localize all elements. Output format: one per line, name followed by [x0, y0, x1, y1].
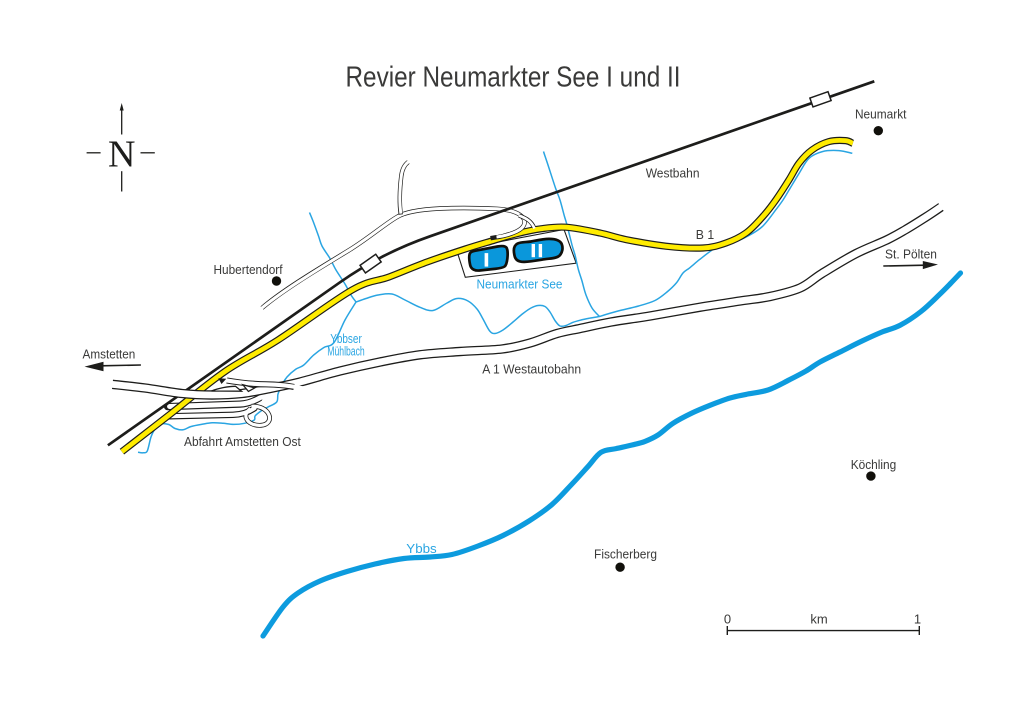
svg-text:Abfahrt Amstetten Ost: Abfahrt Amstetten Ost: [184, 434, 301, 449]
svg-text:1: 1: [914, 612, 921, 627]
svg-text:Neumarkter See: Neumarkter See: [477, 276, 563, 291]
svg-text:Mühlbach: Mühlbach: [327, 344, 365, 359]
svg-text:Fischerberg: Fischerberg: [594, 547, 657, 562]
svg-text:A 1 Westautobahn: A 1 Westautobahn: [482, 362, 581, 377]
svg-text:St. Pölten: St. Pölten: [885, 246, 937, 261]
svg-text:N: N: [108, 134, 135, 176]
svg-text:Westbahn: Westbahn: [646, 166, 700, 181]
svg-text:Ybbs: Ybbs: [406, 541, 437, 556]
svg-text:km: km: [810, 612, 827, 627]
svg-text:Neumarkt: Neumarkt: [855, 107, 907, 122]
svg-text:Köchling: Köchling: [851, 457, 897, 472]
svg-text:Hubertendorf: Hubertendorf: [214, 262, 283, 277]
svg-text:B 1: B 1: [696, 227, 714, 242]
svg-text:Amstetten: Amstetten: [83, 347, 136, 362]
svg-text:Revier Neumarkter See I und II: Revier Neumarkter See I und II: [346, 62, 681, 94]
svg-text:0: 0: [724, 612, 731, 627]
